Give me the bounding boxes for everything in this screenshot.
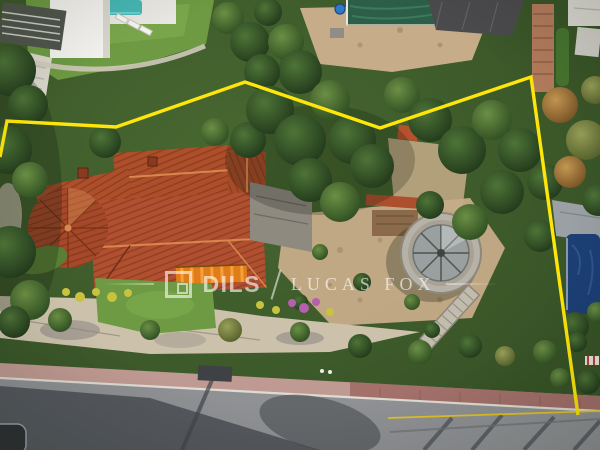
aerial-scene [0,0,600,450]
vignette [0,0,600,450]
aerial-photo: DILS LUCAS FOX [0,0,600,450]
